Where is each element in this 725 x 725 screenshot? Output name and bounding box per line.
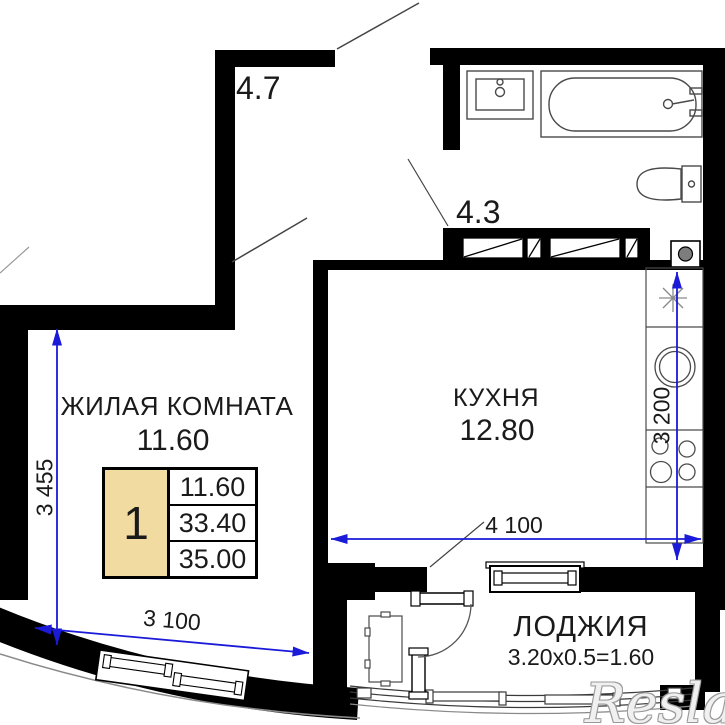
dim-label-4100: 4 100 (464, 514, 564, 537)
loggia-door-icon (409, 591, 473, 699)
loggia-label: ЛОДЖИЯ (481, 613, 681, 642)
living-room-area: 11.60 (73, 426, 273, 456)
loggia-area-calc: 3.20x0.5=1.60 (481, 646, 681, 669)
living-room-label: ЖИЛАЯ КОМНАТА (27, 393, 327, 419)
dim-label-3455: 3 455 (34, 438, 57, 538)
flat-total-area: 35.00 (170, 542, 255, 576)
kitchen-label: КУХНЯ (396, 386, 596, 411)
outer-face-line (0, 247, 29, 273)
flat-living-area: 11.60 (170, 470, 255, 506)
kitchen-loggia-window-icon (486, 562, 584, 592)
bath-sink-icon (467, 71, 533, 119)
dim-label-3200: 3 200 (651, 366, 674, 466)
fridge-spot-snowflake-icon (659, 284, 687, 312)
watermark: Reslate (585, 672, 725, 725)
kitchen-area: 12.80 (397, 416, 597, 446)
washing-machine-icon (671, 241, 700, 267)
vent-shafts-icon (463, 238, 638, 258)
flat-info-table: 1 11.60 33.40 35.00 (102, 467, 258, 579)
entry-door-icon (337, 3, 419, 49)
toilet-icon (637, 166, 701, 202)
loggia-table-icon (365, 612, 402, 686)
bathroom-leader-line (408, 159, 448, 226)
living-room-door-icon (232, 218, 307, 262)
hallway-area: 4.7 (236, 72, 280, 104)
flat-area: 33.40 (170, 506, 255, 542)
flat-number-cell: 1 (105, 470, 170, 576)
bathroom-area: 4.3 (456, 196, 500, 228)
bathtub-icon (541, 71, 702, 137)
floorplan: ЖИЛАЯ КОМНАТА 11.60 КУХНЯ 12.80 ЛОДЖИЯ 3… (0, 0, 725, 725)
